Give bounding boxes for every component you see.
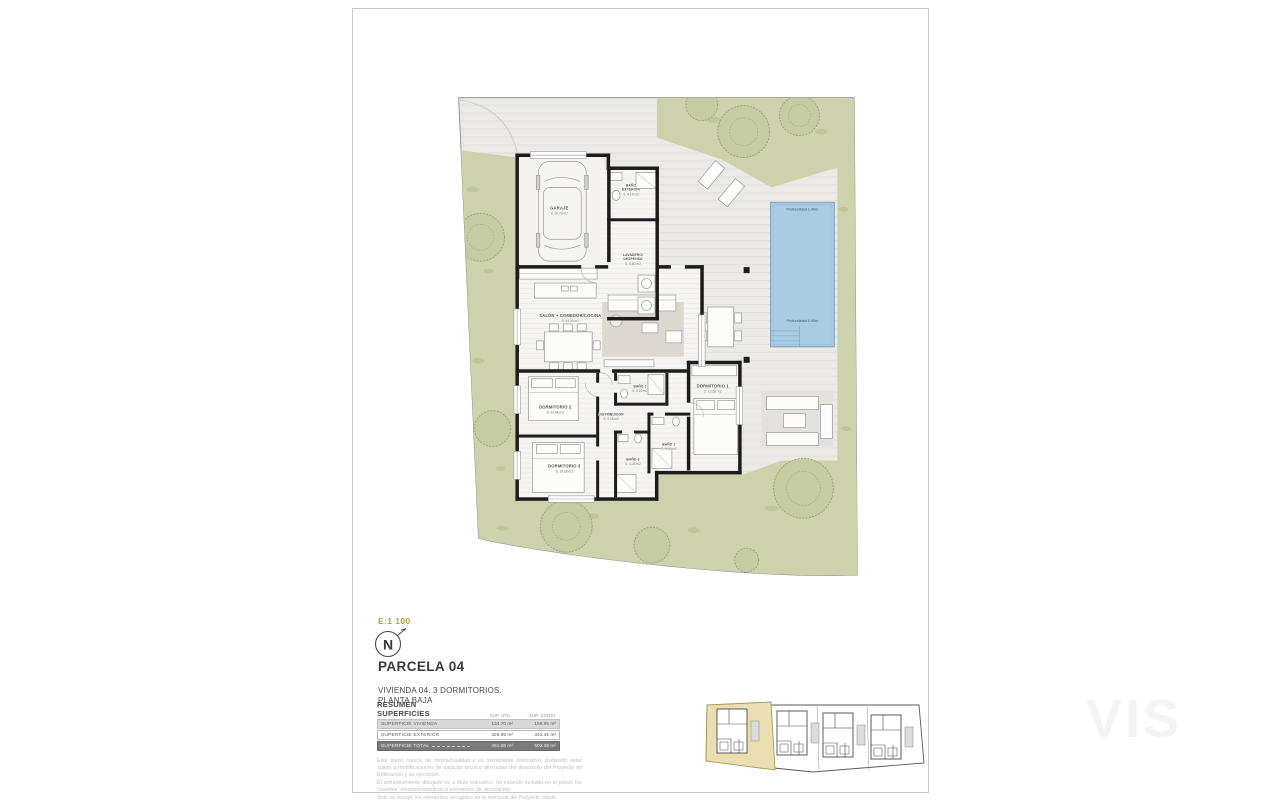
summary-table-title: RESUMEN SUPERFICIES [377,700,468,718]
svg-text:EXTERIOR: EXTERIOR [622,187,640,191]
tv-unit-icon [604,360,654,367]
coffee-table-icon [642,323,658,333]
svg-text:S: 13.58 m2: S: 13.58 m2 [704,390,722,394]
wardrobe-icon [692,366,737,376]
kitchen-counter-icon [519,268,597,279]
leader-dashes [432,746,470,747]
garden-left-strip [455,150,519,541]
svg-text:S: 5.49 m2: S: 5.49 m2 [661,447,677,451]
brand-watermark: VIS [1086,688,1182,750]
disclaimer-text: Este plano carece de contractualidad y e… [377,758,582,802]
pool-depth-shallow-label: Profundidad 0.90m [787,319,819,323]
key-plan [703,691,929,789]
room-label-salon: SALÓN + COMEDOR/COCINA [539,313,601,318]
plan-sheet: Profundidad 1.40m Profundidad 0.90m [352,8,929,793]
svg-text:S: 5.50 m2: S: 5.50 m2 [625,262,641,266]
page-background: { "sheet": { "scale_label": "E:1 100", "… [0,0,1280,800]
outdoor-lounge-icon [762,391,834,447]
kitchen-island-icon [534,283,596,298]
room-label-dormitorio-2: DORMITORIO 2 [539,405,572,410]
svg-text:S: 11.48 m2: S: 11.48 m2 [547,411,565,415]
room-label-bano-1: BAÑO 1 [662,441,675,446]
svg-text:DESPENSA: DESPENSA [623,257,643,261]
room-label-bano-3: BAÑO 3 [626,456,639,461]
room-label-dormitorio-3: DORMITORIO 3 [548,463,581,468]
col-sup-util: SUP. ÚTIL [468,713,514,718]
svg-text:S: 9.08 m2: S: 9.08 m2 [603,417,619,421]
subtitle-line-1: VIVIENDA 04. 3 DORMITORIOS. [378,686,502,696]
room-label-garaje: GARAJE [550,205,568,210]
table-row: SUPERFICIE EXTERIOR 326.95 m² 342.41 m² [377,730,560,740]
room-label-dormitorio-1: DORMITORIO 1 [697,384,730,389]
summary-table: RESUMEN SUPERFICIES SUP. ÚTIL SUP. CONST… [377,706,560,751]
svg-text:S: 4.43 m2: S: 4.43 m2 [625,462,641,466]
scale-label: E:1 100 [378,616,411,626]
room-label-distribuidor: DISTRIBUIDOR [598,413,624,417]
col-sup-const: SUP. CONST. [514,713,560,718]
svg-text:S: 44.90 m2: S: 44.90 m2 [561,319,579,323]
svg-text:S: 5.03 m2: S: 5.03 m2 [632,389,648,393]
svg-text:S: 4.14 m2: S: 4.14 m2 [623,192,639,196]
table-row: SUPERFICIE VIVIENDA 134.70 m² 159.95 m² [377,719,560,729]
site-plan: Profundidad 1.40m Profundidad 0.90m [353,9,928,594]
svg-text:S: 10.28 m2: S: 10.28 m2 [555,469,573,473]
pool-depth-deep-label: Profundidad 1.40m [787,207,819,211]
summary-table-header: RESUMEN SUPERFICIES SUP. ÚTIL SUP. CONST… [377,706,560,718]
north-arrow-tick [398,629,407,636]
parcel-title: PARCELA 04 [378,659,465,674]
table-row: SUPERFICIE TOTAL 461.65 m² 502.36 m² [377,741,560,751]
room-label-bano-2: BAÑO 2 [633,384,646,389]
pool: Profundidad 1.40m Profundidad 0.90m [771,202,835,346]
north-indicator: N [374,627,414,661]
north-letter: N [383,637,393,653]
svg-text:S: 20.79 m2: S: 20.79 m2 [550,211,568,215]
